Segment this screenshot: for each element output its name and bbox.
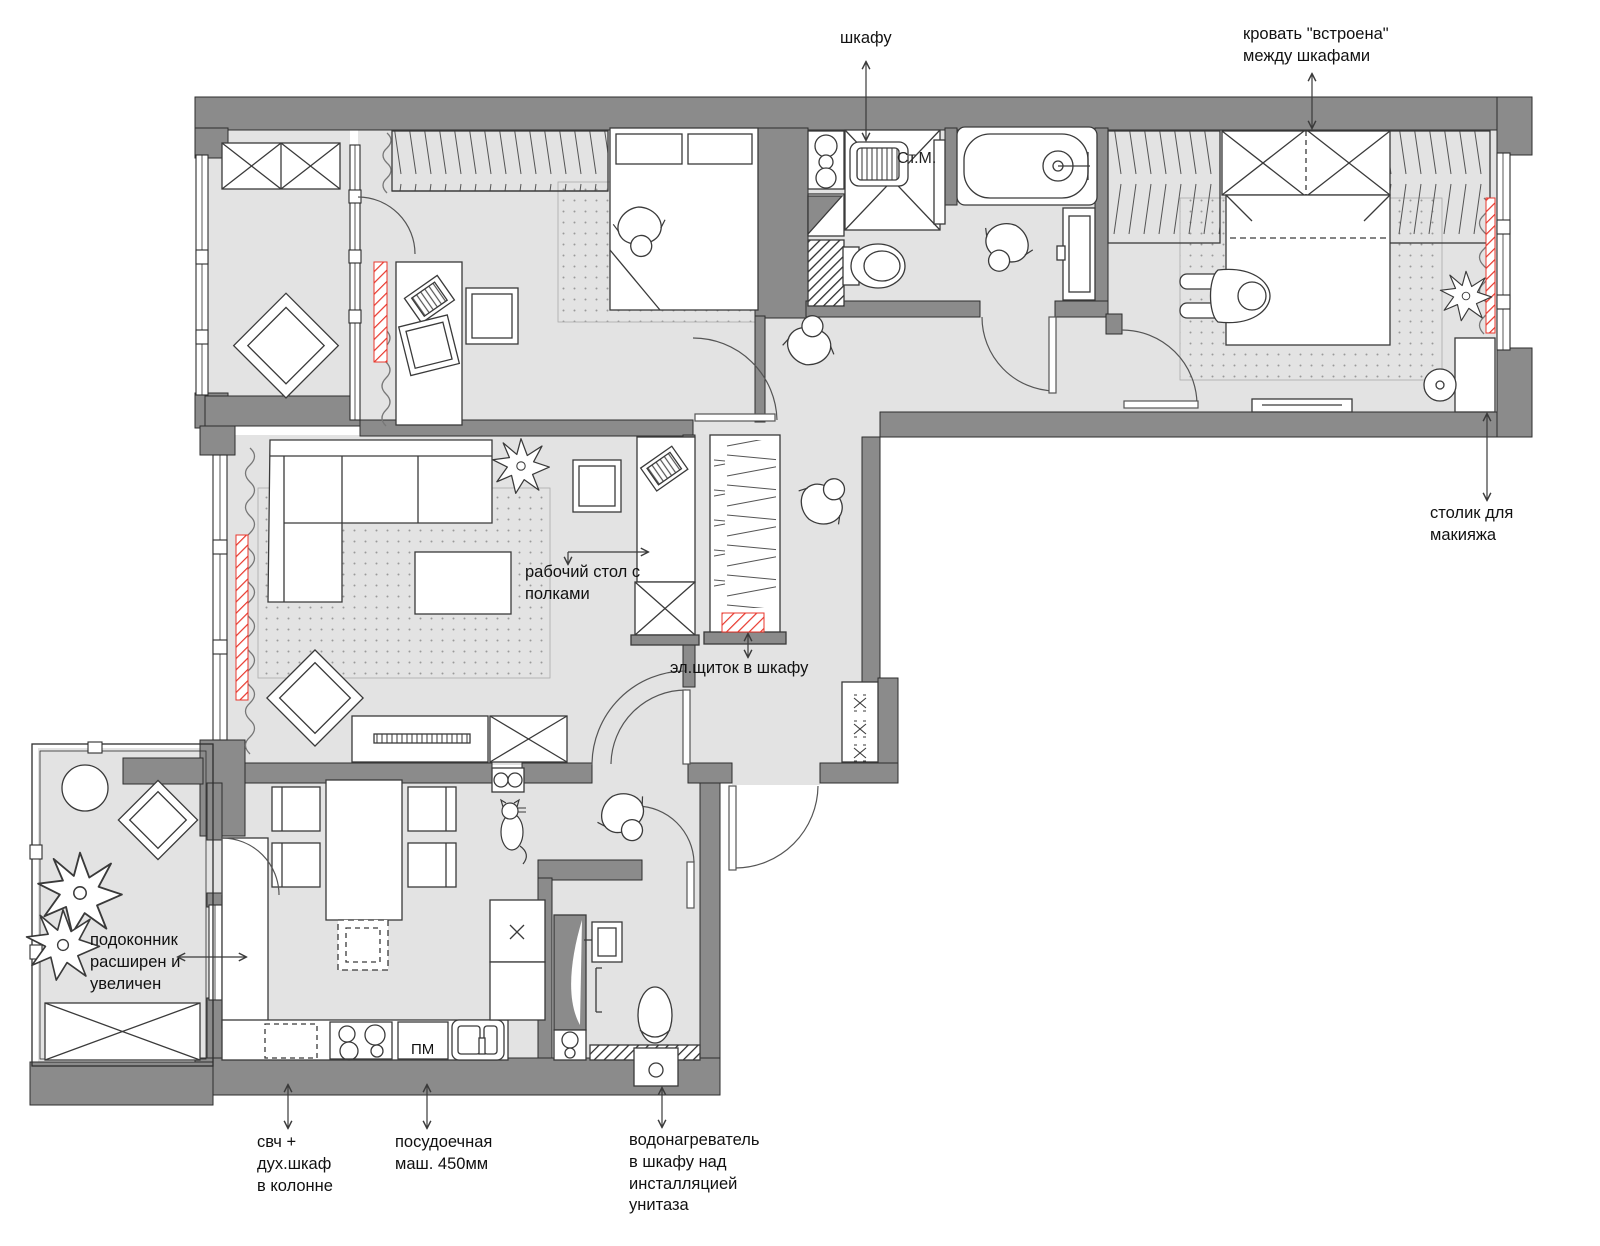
stool [1424, 369, 1456, 401]
pillow [688, 134, 752, 164]
makeup-table [1455, 338, 1495, 412]
chair [408, 843, 456, 887]
entry-door-leaf [729, 786, 736, 870]
entry-door-arc [736, 786, 818, 868]
label-wardrobe-top: шкафу [840, 28, 892, 50]
electrical-panel [722, 613, 764, 632]
chair [272, 787, 320, 831]
radiator [1486, 198, 1495, 333]
dining-table [326, 780, 402, 920]
basin-tap [1057, 246, 1065, 260]
round-table [62, 765, 108, 811]
wc-door-leaf [687, 862, 694, 908]
desk-chair [573, 460, 621, 512]
label-windowsill: подоконник расширен и увеличен [90, 930, 180, 995]
label-makeup-table: столик для макияжа [1430, 503, 1513, 547]
plan-drawing [0, 0, 1600, 1246]
bed [1226, 195, 1390, 345]
label-dishwasher-450: посудоечная маш. 450мм [395, 1132, 492, 1176]
bathroom-door-leaf [1049, 317, 1056, 393]
coat-rack [842, 682, 878, 762]
bedroom1-door-leaf [695, 414, 775, 421]
wardrobe-left [1108, 131, 1220, 243]
living-door-leaf [683, 690, 690, 764]
kitchen-window [209, 905, 222, 1000]
counter-end [490, 962, 545, 1020]
label-electrical-panel: эл.щиток в шкафу [670, 658, 808, 680]
toilet [851, 244, 905, 288]
label-water-heater: водонагреватель в шкафу над инсталляцией… [629, 1130, 759, 1217]
coffee-table [415, 552, 511, 614]
label-built-in-bed: кровать "встроена" между шкафами [1243, 24, 1389, 68]
plumbing-shaft [808, 240, 844, 306]
water-heater-box [634, 1048, 678, 1086]
wardrobe-base [704, 632, 786, 644]
guest-chair [466, 288, 518, 344]
radiator [374, 262, 387, 362]
bedroom2-window [1497, 153, 1510, 350]
wardrobe-right [1388, 131, 1490, 243]
radiator [236, 535, 248, 700]
chair [272, 843, 320, 887]
label-microwave-oven: свч + дух.шкаф в колонне [257, 1132, 333, 1197]
floor-plan: шкафу кровать "встроена" между шкафами с… [0, 0, 1600, 1246]
label-washing-machine: Ст.М. [897, 148, 936, 169]
wardrobe-rail [392, 131, 608, 191]
pillow [616, 134, 682, 164]
windowsill-counter [222, 838, 268, 1028]
label-work-desk: рабочий стол с полками [525, 562, 640, 606]
label-dishwasher-pm: ПМ [411, 1040, 434, 1060]
chair [408, 787, 456, 831]
sink-tap [479, 1038, 485, 1054]
bedroom2-door-leaf [1124, 401, 1198, 408]
tv [374, 734, 470, 743]
wc-toilet [638, 987, 672, 1043]
